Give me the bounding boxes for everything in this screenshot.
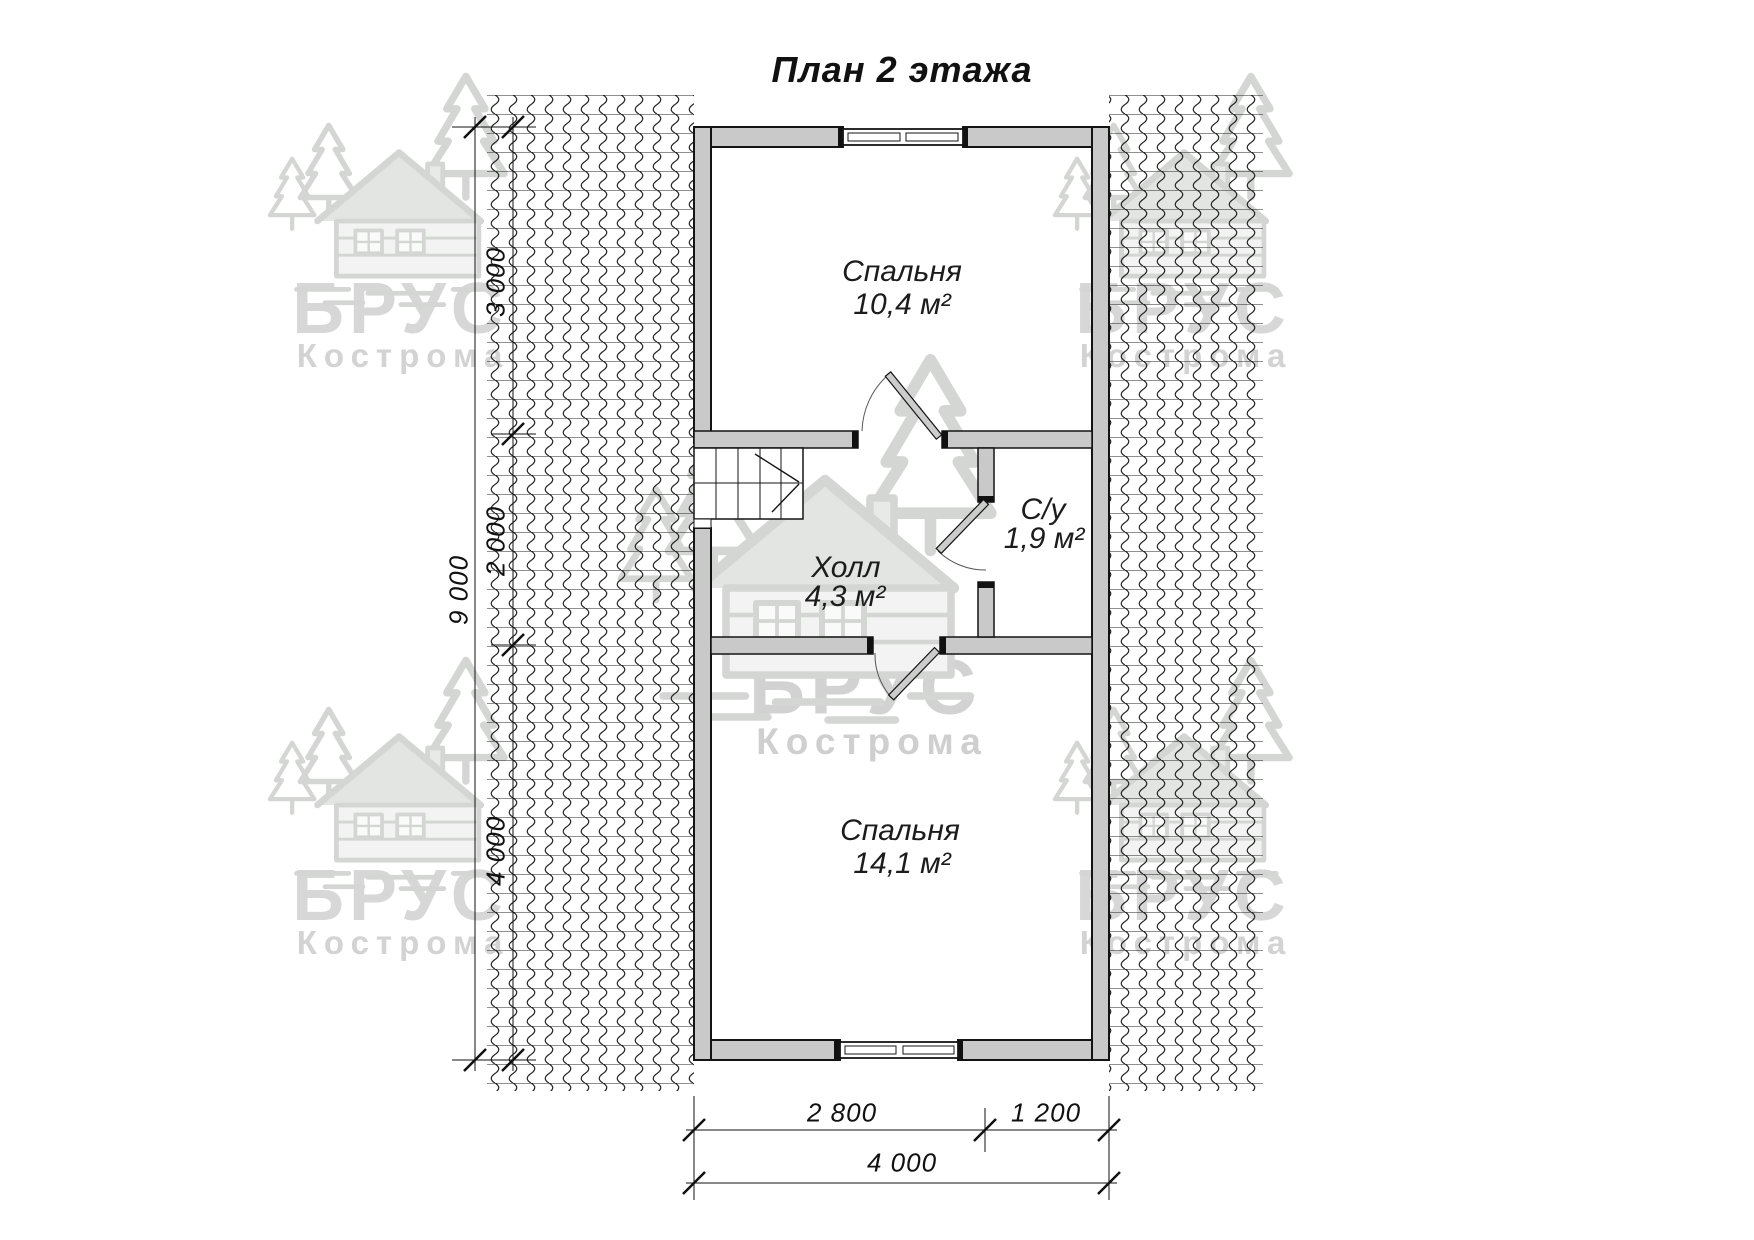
page-title: План 2 этажа [772,49,1033,91]
dim-label-left-segment: 4 000 [481,816,512,886]
dim-label-left-segment: 2 000 [481,506,512,576]
dim-label-bottom-segment: 2 800 [807,1098,877,1129]
room-label-area: 4,3 м² [805,580,886,614]
room-label-area: 14,1 м² [853,847,950,881]
dim-label-left-segment: 3 000 [481,247,512,317]
room-label-area: 1,9 м² [1004,522,1085,556]
dim-label-bottom-segment: 1 200 [1011,1098,1081,1129]
room-label-name: Спальня [842,255,962,289]
room-label-area: 10,4 м² [853,288,950,322]
floor-plan-page: БРУС Кострома БРУС Кострома БРУС Костром… [0,0,1754,1240]
dim-label-left-total: 9 000 [444,555,475,625]
label-layer: План 2 этажа Спальня 10,4 м² С/у 1,9 м² … [0,0,1754,1240]
dim-label-bottom-total: 4 000 [867,1148,937,1179]
room-label-name: Спальня [840,814,960,848]
